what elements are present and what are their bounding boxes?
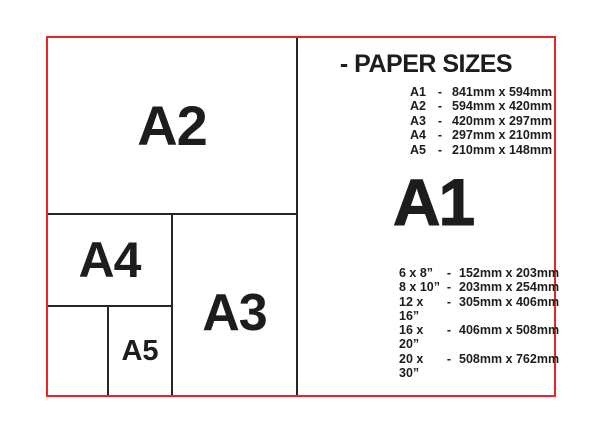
size-dimensions: 305mm x 406mm: [455, 295, 559, 324]
a-series-row: A4 - 297mm x 210mm: [410, 128, 552, 142]
dash-separator: -: [432, 143, 448, 157]
size-name: A4: [410, 128, 432, 142]
featured-size-label: A1: [298, 168, 554, 236]
size-dimensions: 420mm x 297mm: [448, 114, 552, 128]
paper-a4-box: A4: [48, 215, 171, 307]
a-series-row: A3 - 420mm x 297mm: [410, 114, 552, 128]
size-name: A3: [410, 114, 432, 128]
dash-separator: -: [432, 99, 448, 113]
page-title: - PAPER SIZES: [298, 50, 554, 79]
size-name: A2: [410, 99, 432, 113]
dash-separator: -: [443, 352, 455, 381]
size-name: A5: [410, 143, 432, 157]
dash-separator: -: [443, 266, 455, 280]
size-dimensions: 210mm x 148mm: [448, 143, 552, 157]
size-name: A1: [410, 85, 432, 99]
size-dimensions: 203mm x 254mm: [455, 280, 559, 294]
dash-separator: -: [443, 323, 455, 352]
dash-separator: -: [443, 280, 455, 294]
diagram-left-column: A4 A5: [48, 215, 173, 395]
a-series-row: A1 - 841mm x 594mm: [410, 85, 552, 99]
info-panel: - PAPER SIZES A1 - 841mm x 594mm A2 - 59…: [298, 38, 554, 395]
size-dimensions: 594mm x 420mm: [448, 99, 552, 113]
a3-label: A3: [202, 283, 266, 343]
size-name: 16 x 20”: [399, 323, 443, 352]
size-name: 20 x 30”: [399, 352, 443, 381]
paper-a2-box: A2: [48, 38, 296, 215]
size-dimensions: 152mm x 203mm: [455, 266, 559, 280]
dash-separator: -: [432, 128, 448, 142]
paper-a6-blank-box: [48, 307, 109, 395]
a4-label: A4: [79, 231, 141, 289]
diagram-bottom-row: A5: [48, 307, 171, 395]
size-name: 12 x 16”: [399, 295, 443, 324]
paper-a5-box: A5: [109, 307, 171, 395]
inch-series-row: 6 x 8” - 152mm x 203mm: [399, 266, 559, 280]
inch-series-row: 20 x 30” - 508mm x 762mm: [399, 352, 559, 381]
a-series-row: A5 - 210mm x 148mm: [410, 143, 552, 157]
inch-series-row: 16 x 20” - 406mm x 508mm: [399, 323, 559, 352]
paper-size-diagram: A2 A4 A5 A3: [48, 38, 298, 395]
inch-series-row: 8 x 10” - 203mm x 254mm: [399, 280, 559, 294]
size-dimensions: 508mm x 762mm: [455, 352, 559, 381]
paper-a3-box: A3: [173, 215, 296, 395]
size-dimensions: 841mm x 594mm: [448, 85, 552, 99]
size-dimensions: 297mm x 210mm: [448, 128, 552, 142]
diagram-lower-section: A4 A5 A3: [48, 215, 296, 395]
inch-series-table: 6 x 8” - 152mm x 203mm 8 x 10” - 203mm x…: [399, 266, 559, 380]
inch-series-row: 12 x 16” - 305mm x 406mm: [399, 295, 559, 324]
dash-separator: -: [443, 295, 455, 324]
a2-label: A2: [137, 93, 207, 158]
red-border-frame: A2 A4 A5 A3 - PAPER SIZES: [46, 36, 556, 397]
a-series-row: A2 - 594mm x 420mm: [410, 99, 552, 113]
size-name: 6 x 8”: [399, 266, 443, 280]
size-name: 8 x 10”: [399, 280, 443, 294]
size-dimensions: 406mm x 508mm: [455, 323, 559, 352]
dash-separator: -: [432, 85, 448, 99]
a5-label: A5: [121, 335, 158, 368]
dash-separator: -: [432, 114, 448, 128]
a-series-table: A1 - 841mm x 594mm A2 - 594mm x 420mm A3…: [410, 85, 552, 157]
